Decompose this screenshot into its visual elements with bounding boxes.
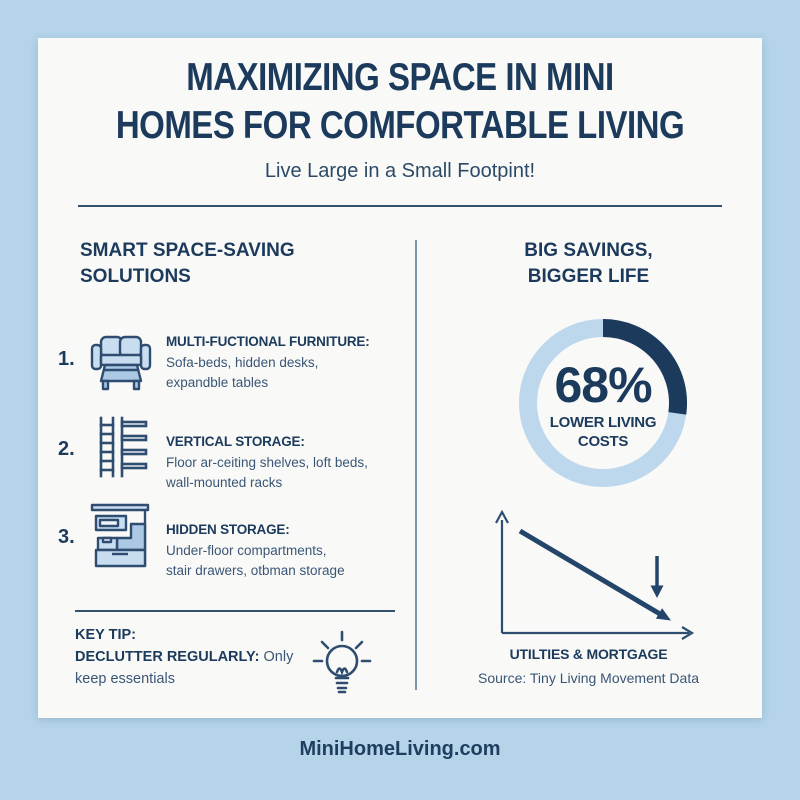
item-2-desc: Floor ar-ceiting shelves, loft beds, wal… xyxy=(166,453,408,493)
item-3-desc: Under-floor compartments, stair drawers,… xyxy=(166,541,408,581)
key-tip-label: KEY TIP: xyxy=(75,627,136,643)
item-3-title: HIDDEN STORAGE: xyxy=(166,522,408,537)
donut-center-text: 68% LOWER LIVING COSTS xyxy=(503,303,703,503)
item-3-text: HIDDEN STORAGE: Under-floor compartments… xyxy=(166,522,408,581)
left-section-heading: SMART SPACE-SAVING SOLUTIONS xyxy=(80,238,295,290)
page-title-line1: MAXIMIZING SPACE IN MINI xyxy=(186,54,613,98)
left-heading-line1: SMART SPACE-SAVING xyxy=(80,240,295,261)
trend-line xyxy=(520,531,660,614)
title-divider xyxy=(78,205,722,207)
key-tip-emphasis: DECLUTTER REGULARLY: xyxy=(75,649,259,665)
page-background: { "infographic": { "title_line1": "MAXIM… xyxy=(0,0,800,800)
right-heading-line2: BIGGER LIFE xyxy=(528,266,649,287)
page-title: MAXIMIZING SPACE IN MINI HOMES FOR COMFO… xyxy=(38,52,762,149)
page-title-line2: HOMES FOR COMFORTABLE LIVING xyxy=(116,103,684,147)
down-arrow-head xyxy=(651,586,664,599)
right-section-heading: BIG SAVINGS, BIGGER LIFE xyxy=(415,238,762,290)
trend-source: Source: Tiny Living Movement Data xyxy=(415,670,762,686)
donut-value: 68% xyxy=(554,360,651,410)
key-tip-block: KEY TIP: DECLUTTER REGULARLY: Only keep … xyxy=(75,624,310,690)
left-heading-line2: SOLUTIONS xyxy=(80,266,191,287)
lightbulb-icon xyxy=(310,628,374,702)
key-tip-divider xyxy=(75,610,395,612)
item-2-title: VERTICAL STORAGE: xyxy=(166,434,408,449)
right-heading-line1: BIG SAVINGS, xyxy=(524,240,652,261)
site-url: MiniHomeLiving.com xyxy=(0,738,800,761)
donut-chart: 68% LOWER LIVING COSTS xyxy=(503,303,703,503)
key-tip-rest1: Only xyxy=(259,649,293,665)
vertical-shelves-icon xyxy=(94,416,148,478)
infographic-card: MAXIMIZING SPACE IN MINI HOMES FOR COMFO… xyxy=(38,38,762,718)
column-divider xyxy=(415,240,417,690)
item-3-number: 3. xyxy=(58,526,84,549)
stair-storage-icon xyxy=(88,502,152,570)
item-1-desc: Sofa-beds, hidden desks, expandble table… xyxy=(166,353,408,393)
item-2-number: 2. xyxy=(58,438,84,461)
key-tip-rest2: keep essentials xyxy=(75,671,175,687)
sofa-bed-icon xyxy=(90,334,152,392)
trend-axis-label: UTILTIES & MORTGAGE xyxy=(415,646,762,662)
page-subtitle: Live Large in a Small Footpint! xyxy=(38,160,762,183)
item-1-text: MULTI-FUCTIONAL FURNITURE: Sofa-beds, hi… xyxy=(166,334,408,393)
item-1-title: MULTI-FUCTIONAL FURNITURE: xyxy=(166,334,408,349)
donut-label: LOWER LIVING COSTS xyxy=(550,413,656,451)
item-2-text: VERTICAL STORAGE: Floor ar-ceiting shelv… xyxy=(166,434,408,493)
trend-chart xyxy=(493,506,713,646)
item-1-number: 1. xyxy=(58,348,84,371)
